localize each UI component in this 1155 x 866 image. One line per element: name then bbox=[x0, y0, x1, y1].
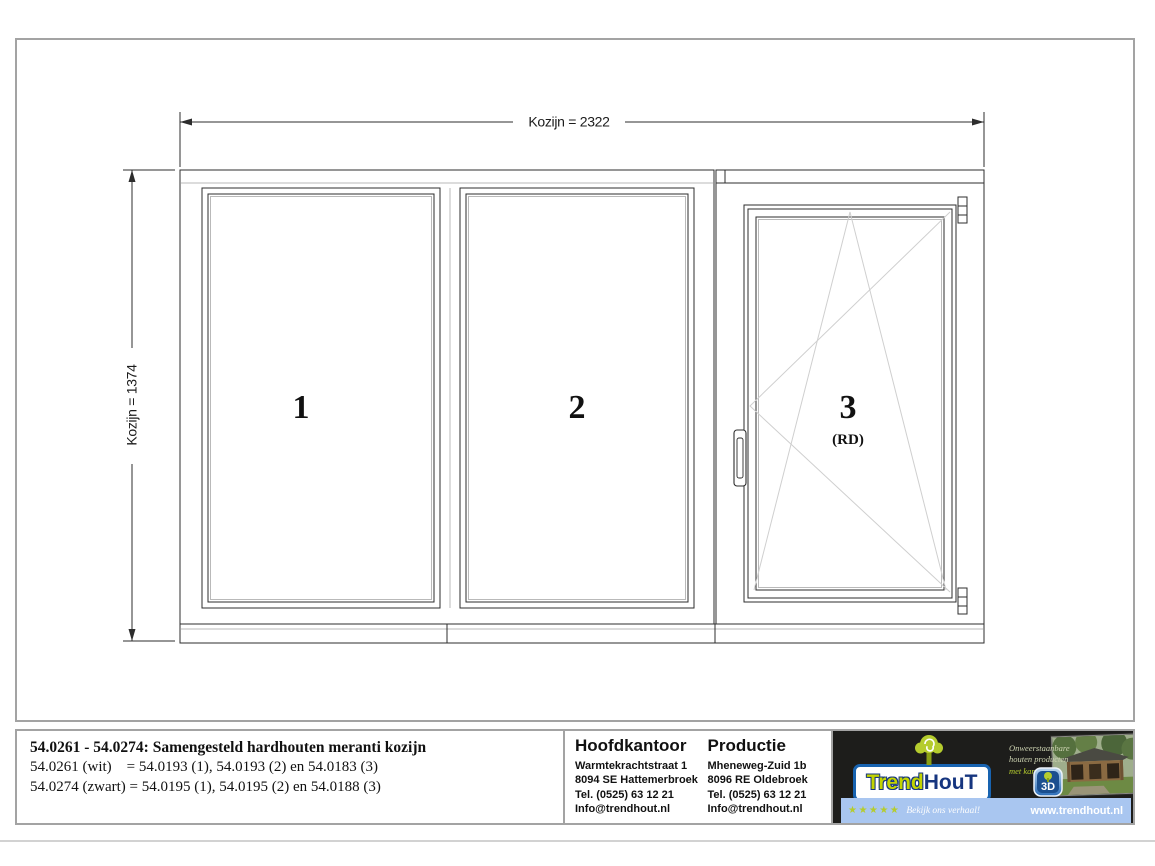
slogan-line-2: houten producten bbox=[1009, 754, 1070, 765]
productie-phone: Tel. (0525) 63 12 21 bbox=[708, 788, 832, 803]
frame-section-a bbox=[180, 170, 714, 624]
window-frame-drawing: Kozijn = 2322 Kozijn = 1374 bbox=[17, 40, 1133, 720]
logo-text-trend: Trend bbox=[867, 771, 924, 795]
productie-street: Mheneweg-Zuid 1b bbox=[708, 759, 832, 774]
tree-icon bbox=[911, 734, 947, 766]
panel-3-sublabel: (RD) bbox=[832, 432, 864, 448]
hoofdkantoor-heading: Hoofdkantoor bbox=[575, 736, 699, 756]
dimension-width: Kozijn = 2322 bbox=[180, 112, 984, 167]
title-block: 54.0261 - 54.0274: Samengesteld hardhout… bbox=[15, 729, 1135, 825]
panel-3-label: 3 bbox=[840, 389, 857, 426]
hoofdkantoor-phone: Tel. (0525) 63 12 21 bbox=[575, 788, 699, 803]
hoofdkantoor-street: Warmtekrachtstraat 1 bbox=[575, 759, 699, 774]
logo-text-hout: HouT bbox=[924, 771, 978, 795]
drawing-title: 54.0261 - 54.0274: Samengesteld hardhout… bbox=[30, 738, 563, 758]
drawing-variant-white: 54.0261 (wit) = 54.0193 (1), 54.0193 (2)… bbox=[30, 758, 563, 778]
panel-1-label: 1 bbox=[293, 389, 310, 426]
drawing-variant-black: 54.0274 (zwart) = 54.0195 (1), 54.0195 (… bbox=[30, 778, 563, 798]
3d-badge-label: 3D bbox=[1041, 781, 1055, 793]
slogan-line-1: Onweerstaanbare bbox=[1009, 743, 1070, 754]
review-strip: ★★★★★ Bekijk ons verhaal! www.trendhout.… bbox=[841, 798, 1131, 823]
productie-heading: Productie bbox=[708, 736, 832, 756]
page-bottom-edge bbox=[0, 840, 1155, 842]
drawing-area: Kozijn = 2322 Kozijn = 1374 bbox=[15, 38, 1135, 722]
hoofdkantoor-email[interactable]: Info@trendhout.nl bbox=[575, 802, 699, 817]
dimension-height-label: Kozijn = 1374 bbox=[124, 364, 140, 446]
hinge-bottom bbox=[958, 588, 967, 614]
pane-1-opening bbox=[202, 188, 440, 608]
dimension-width-label: Kozijn = 2322 bbox=[528, 114, 610, 130]
rating-stars-icon: ★★★★★ bbox=[848, 806, 900, 816]
trendhout-logo[interactable]: TrendHouT bbox=[853, 764, 991, 802]
review-cta[interactable]: Bekijk ons verhaal! bbox=[906, 806, 980, 816]
company-addresses: Hoofdkantoor Warmtekrachtstraat 1 8094 S… bbox=[563, 731, 831, 823]
productie-email[interactable]: Info@trendhout.nl bbox=[708, 802, 832, 817]
brand-panel: TrendHouT Onweerstaanbare houten product… bbox=[831, 731, 1133, 823]
bottom-sill bbox=[180, 624, 984, 643]
productie-city: 8096 RE Oldebroek bbox=[708, 773, 832, 788]
panel-2-label: 2 bbox=[569, 389, 586, 426]
3d-viewer-icon[interactable]: 3D bbox=[1033, 767, 1063, 797]
dimension-height: Kozijn = 1374 bbox=[123, 170, 175, 641]
hinge-top bbox=[958, 197, 967, 223]
hoofdkantoor-address: Hoofdkantoor Warmtekrachtstraat 1 8094 S… bbox=[575, 736, 699, 823]
drawing-sheet: Kozijn = 2322 Kozijn = 1374 bbox=[0, 0, 1155, 866]
hoofdkantoor-city: 8094 SE Hattemerbroek bbox=[575, 773, 699, 788]
website-link[interactable]: www.trendhout.nl bbox=[1031, 805, 1123, 817]
window-handle bbox=[734, 430, 746, 486]
productie-address: Productie Mheneweg-Zuid 1b 8096 RE Oldeb… bbox=[708, 736, 832, 823]
drawing-info: 54.0261 - 54.0274: Samengesteld hardhout… bbox=[17, 731, 563, 823]
